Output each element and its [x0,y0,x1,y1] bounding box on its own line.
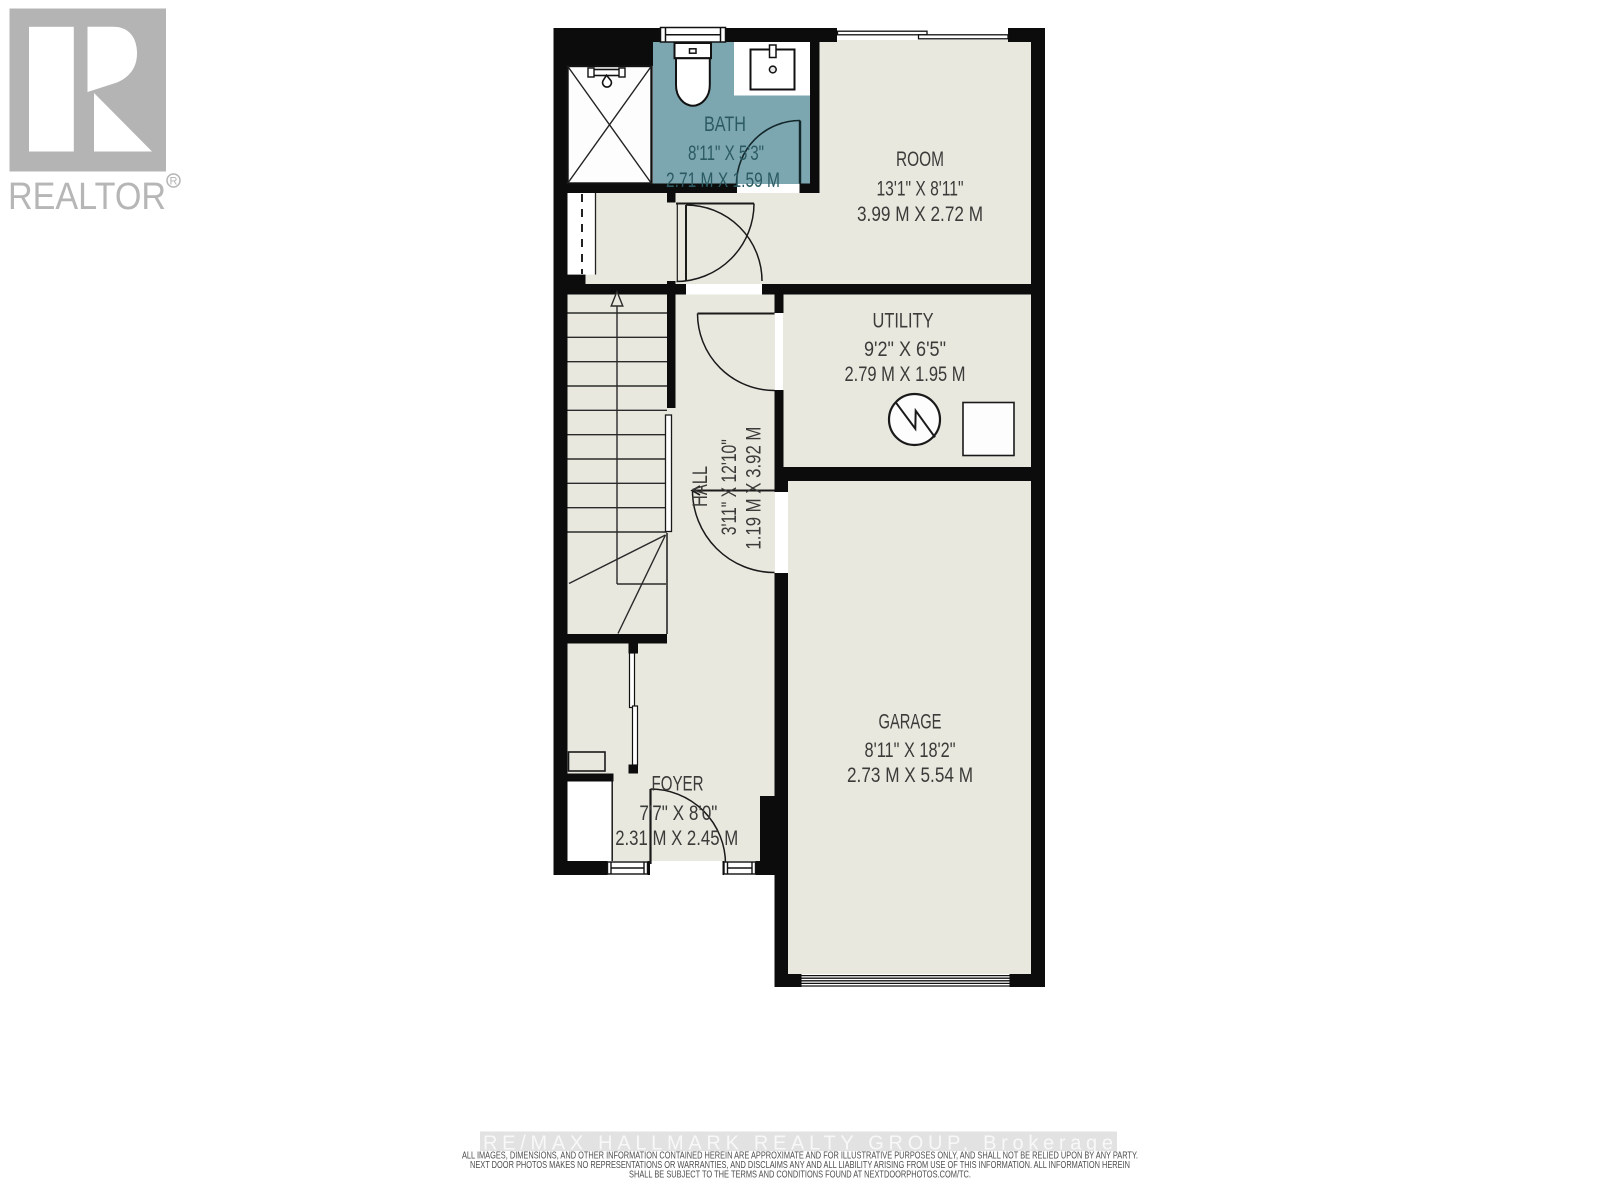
svg-text:HALL: HALL [689,466,712,507]
svg-text:FOYER: FOYER [652,773,704,796]
svg-text:GARAGE: GARAGE [879,711,942,734]
svg-text:R: R [170,176,178,188]
svg-text:8'11" X 18'2": 8'11" X 18'2" [865,739,956,762]
svg-text:3.99 M X 2.72 M: 3.99 M X 2.72 M [857,203,983,226]
svg-text:BATH: BATH [704,113,746,136]
svg-text:3'11" X 12'10": 3'11" X 12'10" [718,439,741,535]
svg-text:REALTOR: REALTOR [8,176,166,218]
svg-text:1.19 M X 3.92 M: 1.19 M X 3.92 M [743,427,766,550]
svg-text:SHALL BE SUBJECT TO THE TERMS: SHALL BE SUBJECT TO THE TERMS AND CONDIT… [629,1169,971,1181]
svg-text:2.31 M X 2.45 M: 2.31 M X 2.45 M [615,827,738,850]
svg-text:7'7" X 8'0": 7'7" X 8'0" [639,802,717,825]
svg-text:2.79 M X 1.95 M: 2.79 M X 1.95 M [845,363,966,386]
svg-text:2.73 M X 5.54 M: 2.73 M X 5.54 M [847,764,973,787]
svg-text:8'11" X 5'3": 8'11" X 5'3" [688,142,764,165]
svg-text:UTILITY: UTILITY [873,310,934,333]
svg-text:9'2" X 6'5": 9'2" X 6'5" [864,338,946,361]
svg-text:13'1" X 8'11": 13'1" X 8'11" [877,178,964,201]
svg-text:2.71 M X 1.59 M: 2.71 M X 1.59 M [666,169,780,192]
svg-text:ROOM: ROOM [896,148,944,171]
